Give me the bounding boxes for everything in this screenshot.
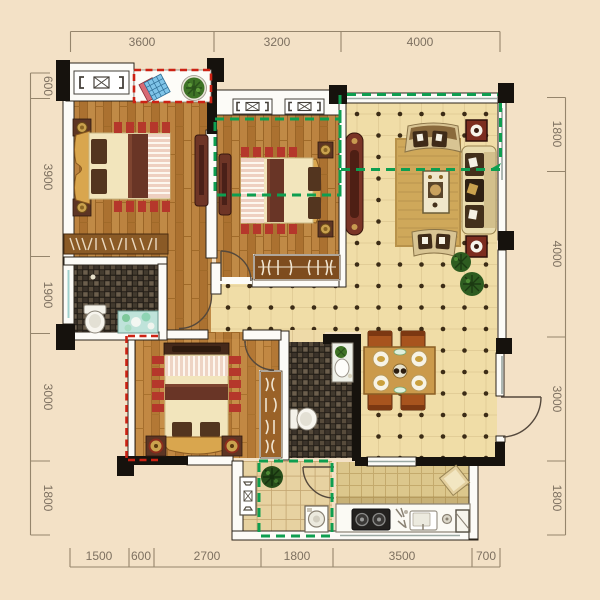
svg-text:1800: 1800 [550, 121, 564, 148]
svg-text:3200: 3200 [264, 35, 291, 49]
svg-text:1800: 1800 [550, 485, 564, 512]
svg-text:3000: 3000 [550, 386, 564, 413]
svg-text:1900: 1900 [41, 282, 55, 309]
svg-text:2700: 2700 [194, 549, 221, 563]
svg-text:3600: 3600 [129, 35, 156, 49]
svg-text:600: 600 [41, 76, 55, 96]
svg-text:600: 600 [131, 549, 151, 563]
svg-text:700: 700 [476, 549, 496, 563]
svg-text:1800: 1800 [41, 485, 55, 512]
svg-text:3000: 3000 [41, 384, 55, 411]
svg-text:3900: 3900 [41, 164, 55, 191]
svg-text:1800: 1800 [284, 549, 311, 563]
svg-text:4000: 4000 [407, 35, 434, 49]
svg-text:3500: 3500 [389, 549, 416, 563]
svg-text:1500: 1500 [86, 549, 113, 563]
svg-text:4000: 4000 [550, 241, 564, 268]
